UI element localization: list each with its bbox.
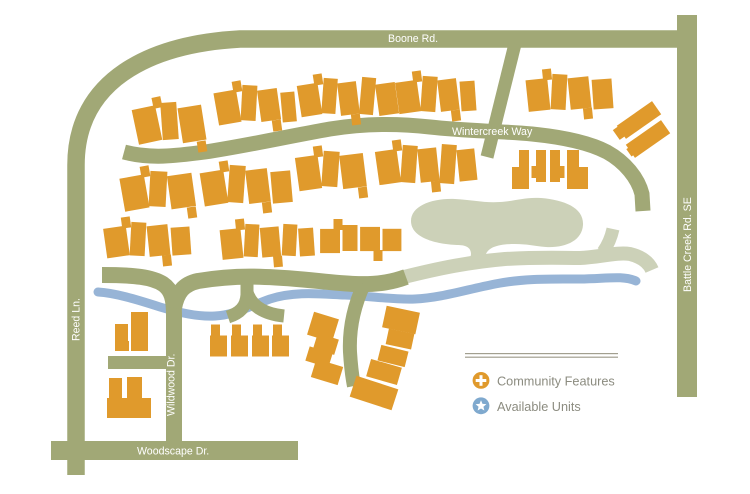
svg-text:Wildwood Dr.: Wildwood Dr. xyxy=(166,354,178,416)
svg-text:Community Features: Community Features xyxy=(497,374,615,388)
svg-text:Boone Rd.: Boone Rd. xyxy=(388,33,438,45)
svg-text:Battle Creek Rd. SE: Battle Creek Rd. SE xyxy=(682,197,694,292)
svg-text:Woodscape Dr.: Woodscape Dr. xyxy=(137,446,209,458)
svg-text:Available Units: Available Units xyxy=(497,400,581,414)
svg-text:Reed Ln.: Reed Ln. xyxy=(71,298,83,341)
svg-text:Wintercreek Way: Wintercreek Way xyxy=(452,126,533,138)
